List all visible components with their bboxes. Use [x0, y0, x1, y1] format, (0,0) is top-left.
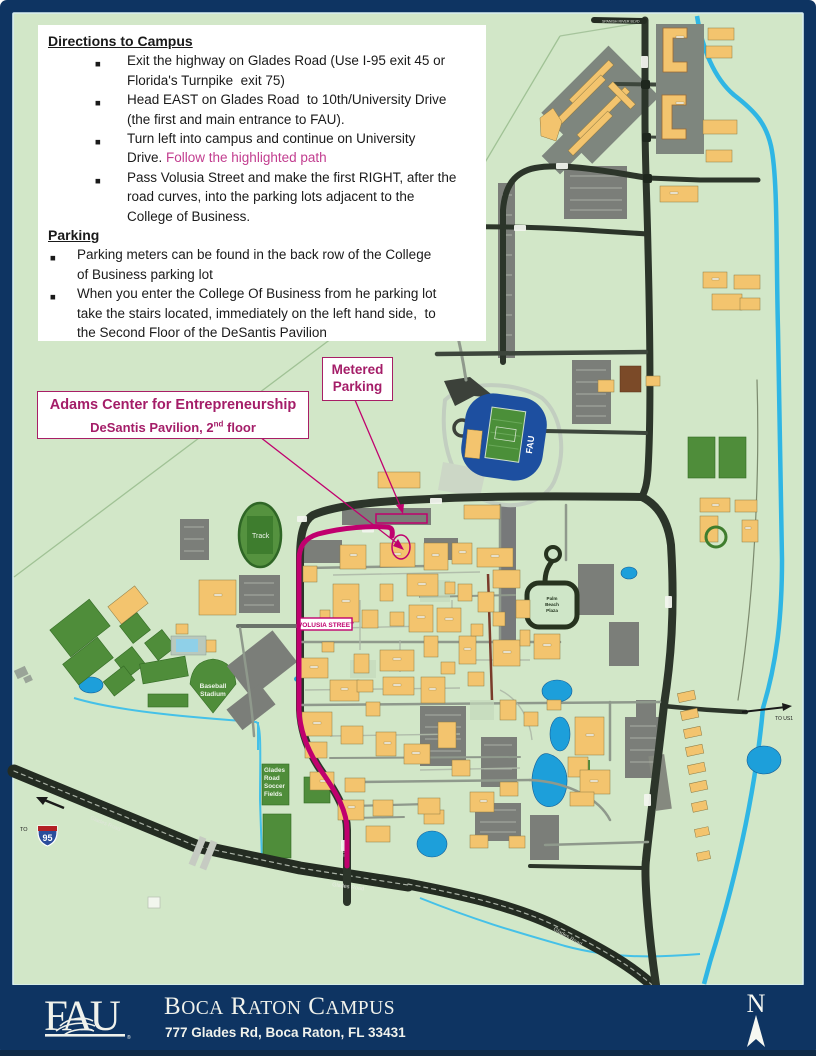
svg-text:Track: Track: [252, 533, 270, 540]
svg-text:Road: Road: [264, 775, 280, 782]
svg-text:SPANISH RIVER BLVD: SPANISH RIVER BLVD: [602, 20, 640, 24]
svg-text:VOLUSIA STREET: VOLUSIA STREET: [298, 622, 354, 629]
svg-text:Soccer: Soccer: [264, 783, 286, 790]
svg-text:Plaza: Plaza: [546, 608, 558, 613]
svg-text:TO US1: TO US1: [775, 716, 793, 722]
svg-text:Fields: Fields: [264, 791, 283, 798]
svg-text:Beach: Beach: [545, 602, 559, 607]
svg-text:TO: TO: [20, 827, 28, 833]
svg-text:FAU: FAU: [44, 993, 121, 1040]
svg-text:95: 95: [42, 833, 52, 843]
svg-text:®: ®: [127, 1034, 131, 1041]
svg-text:Baseball: Baseball: [200, 683, 227, 690]
svg-text:Palm: Palm: [547, 596, 558, 601]
svg-text:Stadium: Stadium: [200, 691, 226, 698]
svg-text:Glades: Glades: [264, 767, 285, 774]
